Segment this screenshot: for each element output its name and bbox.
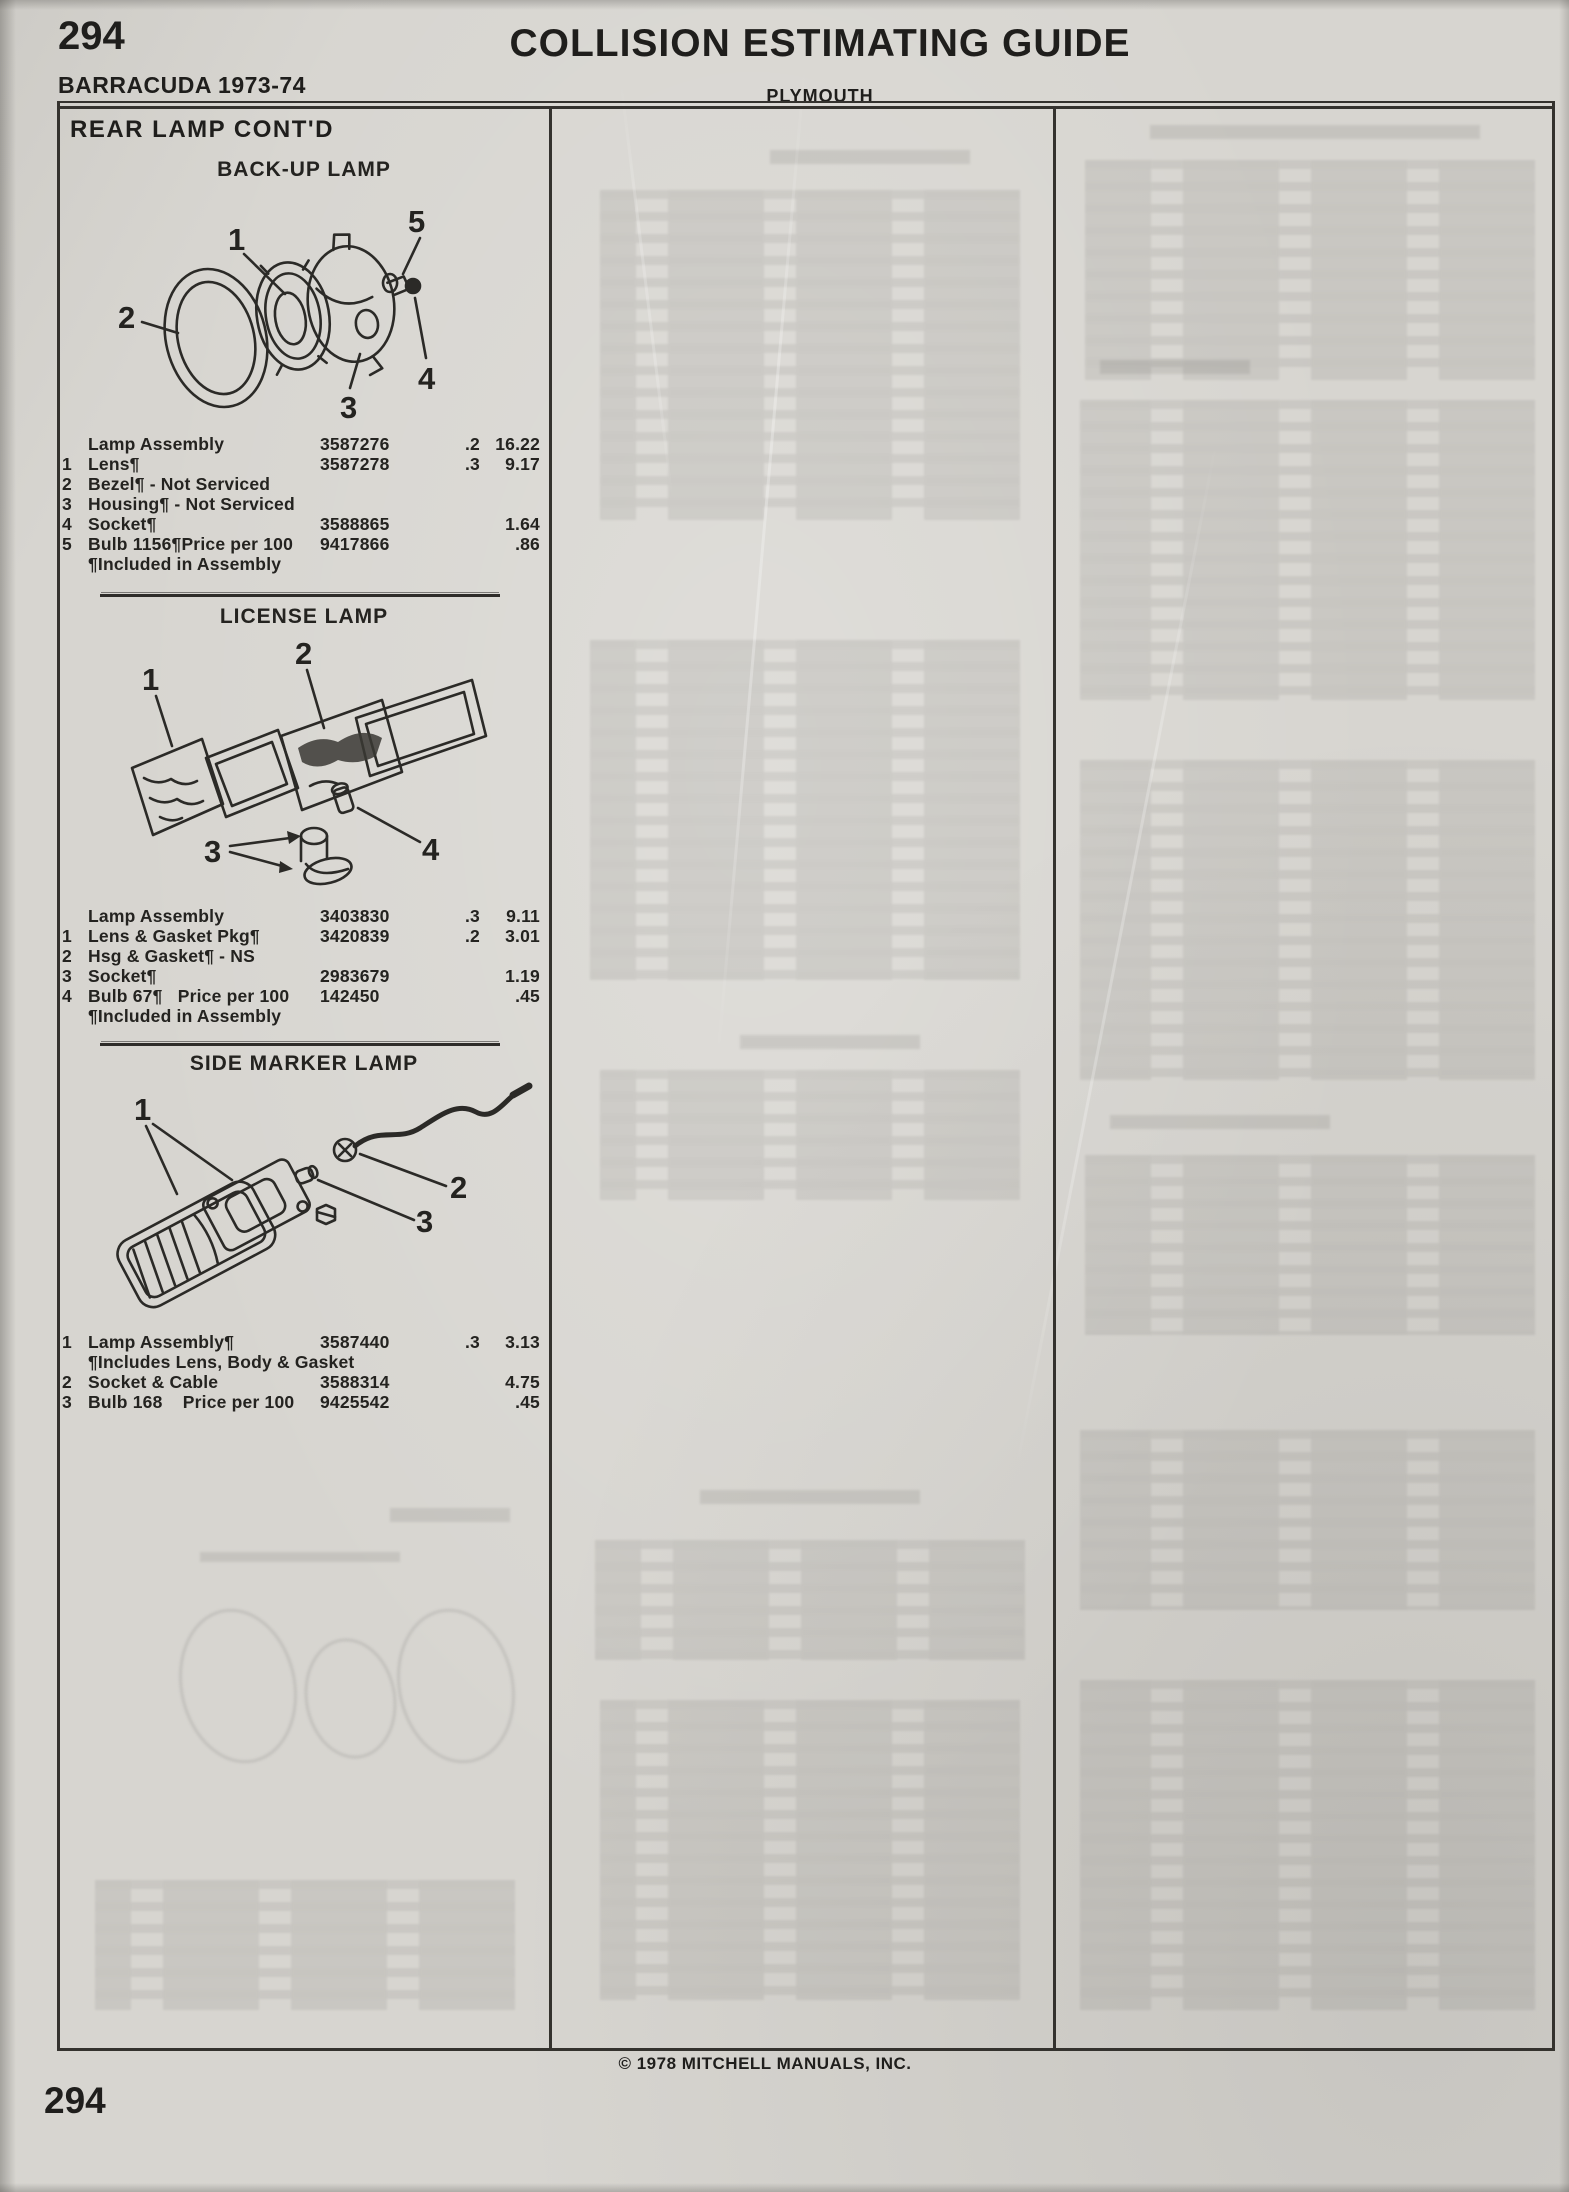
part-number: 142450 xyxy=(320,986,432,1006)
column-divider xyxy=(1053,106,1056,2051)
part-number xyxy=(320,1006,432,1026)
bleed-through-artifact xyxy=(200,1552,400,1562)
item-number: 3 xyxy=(62,494,88,514)
parts-row: 1Lens¶3587278.39.17 xyxy=(62,454,540,474)
section-separator xyxy=(100,594,500,597)
price xyxy=(480,946,540,966)
socket-shape xyxy=(301,828,354,888)
model-title: BARRACUDA 1973-74 xyxy=(58,72,306,99)
part-number: 3587440 xyxy=(320,1332,432,1352)
page-number-top: 294 xyxy=(58,14,125,59)
parts-row: 4Socket¶35888651.64 xyxy=(62,514,540,534)
part-number xyxy=(320,1352,432,1372)
callout-number: 4 xyxy=(418,361,436,396)
parts-row: 3Socket¶29836791.19 xyxy=(62,966,540,986)
bulb-shape xyxy=(331,782,355,815)
item-number xyxy=(62,434,88,454)
part-number: 3587278 xyxy=(320,454,432,474)
page-number-bottom: 294 xyxy=(44,2080,106,2122)
footer-copyright: © 1978 MITCHELL MANUALS, INC. xyxy=(460,2054,1070,2074)
part-number: 9425542 xyxy=(320,1392,432,1412)
bleed-through-artifact xyxy=(1085,160,1535,380)
parts-row: Lamp Assembly3403830.39.11 xyxy=(62,906,540,926)
price: .45 xyxy=(480,1392,540,1412)
item-number: 3 xyxy=(62,966,88,986)
nut-shape xyxy=(406,279,420,293)
parts-row: ¶Included in Assembly xyxy=(62,554,540,574)
price xyxy=(480,554,540,574)
parts-row: Lamp Assembly3587276.216.22 xyxy=(62,434,540,454)
callout-number: 4 xyxy=(422,832,440,867)
callout-number: 5 xyxy=(408,204,425,239)
labor-time xyxy=(432,1372,480,1392)
bleed-through-artifact xyxy=(1150,125,1480,139)
description: Bulb 67¶ Price per 100 xyxy=(88,986,320,1006)
item-number: 4 xyxy=(62,986,88,1006)
price: 3.01 xyxy=(480,926,540,946)
callout-number: 3 xyxy=(416,1204,433,1239)
section-heading-side-marker-lamp: SIDE MARKER LAMP xyxy=(57,1052,551,1076)
nut-shape xyxy=(317,1205,335,1224)
callout-line xyxy=(318,1180,414,1220)
column-divider xyxy=(549,106,552,2051)
price: 9.11 xyxy=(480,906,540,926)
table-border-right xyxy=(1552,101,1555,2051)
lamp-assembly-shape xyxy=(112,1176,281,1313)
labor-time xyxy=(432,554,480,574)
price: .45 xyxy=(480,986,540,1006)
part-number xyxy=(320,946,432,966)
description: Lamp Assembly¶ xyxy=(88,1332,320,1352)
parts-row: 4Bulb 67¶ Price per 100142450.45 xyxy=(62,986,540,1006)
scan-edge-artifact xyxy=(0,2183,1569,2192)
bleed-through-artifact xyxy=(390,1508,510,1522)
labor-time: .2 xyxy=(432,926,480,946)
item-number xyxy=(62,1352,88,1372)
labor-time: .3 xyxy=(432,1332,480,1352)
price: 9.17 xyxy=(480,454,540,474)
table-border-top xyxy=(57,106,1555,109)
license-lamp-diagram: 1 2 3 4 xyxy=(60,636,542,894)
scan-edge-artifact xyxy=(0,0,1569,10)
labor-time: .3 xyxy=(432,454,480,474)
labor-time xyxy=(432,946,480,966)
bleed-through-artifact xyxy=(295,1631,406,1766)
labor-time: .3 xyxy=(432,906,480,926)
section-separator xyxy=(100,1043,500,1046)
table-border-top xyxy=(57,101,1555,103)
price xyxy=(480,494,540,514)
description: Bezel¶ - Not Serviced xyxy=(88,474,320,494)
callout-line xyxy=(153,1124,232,1180)
parts-row: 2Bezel¶ - Not Serviced xyxy=(62,474,540,494)
callout-number: 1 xyxy=(228,222,245,257)
description: Bulb 168 Price per 100 xyxy=(88,1392,320,1412)
lens-shape xyxy=(132,739,223,835)
labor-time xyxy=(432,494,480,514)
bleed-through-artifact xyxy=(590,640,1020,980)
callout-number: 3 xyxy=(340,390,357,425)
parts-row: 5Bulb 1156¶Price per 1009417866.86 xyxy=(62,534,540,554)
labor-time xyxy=(432,986,480,1006)
make-title: PLYMOUTH xyxy=(620,86,1020,107)
bleed-through-artifact xyxy=(595,1540,1025,1660)
item-number: 5 xyxy=(62,534,88,554)
table-border-bottom xyxy=(57,2048,1555,2051)
callout-line xyxy=(142,322,178,333)
bleed-through-artifact xyxy=(1080,1430,1535,1610)
labor-time xyxy=(432,474,480,494)
bleed-through-artifact xyxy=(165,1598,311,1775)
item-number: 3 xyxy=(62,1392,88,1412)
labor-time xyxy=(432,534,480,554)
parts-list-backup-lamp: Lamp Assembly3587276.216.221Lens¶3587278… xyxy=(62,434,540,574)
frame-shape xyxy=(356,680,486,776)
parts-row: 1Lens & Gasket Pkg¶3420839.23.01 xyxy=(62,926,540,946)
callout-line xyxy=(244,254,285,294)
arrowhead xyxy=(279,861,293,873)
arrowhead xyxy=(287,831,301,844)
part-number: 2983679 xyxy=(320,966,432,986)
price: 1.64 xyxy=(480,514,540,534)
bleed-through-artifact xyxy=(1110,1115,1330,1129)
description: ¶Includes Lens, Body & Gasket xyxy=(88,1352,320,1372)
description: Lens¶ xyxy=(88,454,320,474)
item-number: 2 xyxy=(62,1372,88,1392)
parts-list-side-marker-lamp: 1Lamp Assembly¶3587440.33.13¶Includes Le… xyxy=(62,1332,540,1412)
item-number xyxy=(62,1006,88,1026)
item-number: 4 xyxy=(62,514,88,534)
bleed-through-artifact xyxy=(770,150,970,164)
callout-number: 2 xyxy=(450,1170,467,1205)
labor-time xyxy=(432,1352,480,1372)
item-number: 1 xyxy=(62,454,88,474)
labor-time xyxy=(432,1006,480,1026)
price: 16.22 xyxy=(480,434,540,454)
callout-line xyxy=(403,238,420,274)
labor-time: .2 xyxy=(432,434,480,454)
price: 1.19 xyxy=(480,966,540,986)
bleed-through-artifact xyxy=(1085,1155,1535,1335)
callout-line xyxy=(230,852,282,866)
description: ¶Included in Assembly xyxy=(88,1006,320,1026)
scanned-catalog-page: 294 COLLISION ESTIMATING GUIDE BARRACUDA… xyxy=(0,0,1569,2192)
callout-number: 1 xyxy=(142,662,159,697)
bleed-through-artifact xyxy=(1080,400,1535,700)
part-number: 9417866 xyxy=(320,534,432,554)
bleed-through-artifact xyxy=(1100,360,1250,374)
price xyxy=(480,1352,540,1372)
bleed-through-artifact xyxy=(600,190,1020,520)
parts-row: 3Bulb 168 Price per 1009425542.45 xyxy=(62,1392,540,1412)
callout-line xyxy=(230,838,290,846)
item-number: 2 xyxy=(62,946,88,966)
side-marker-lamp-diagram: 1 2 3 xyxy=(60,1084,542,1336)
callout-line xyxy=(360,1154,446,1186)
item-number xyxy=(62,906,88,926)
parts-row: 1Lamp Assembly¶3587440.33.13 xyxy=(62,1332,540,1352)
bleed-through-artifact xyxy=(740,1035,920,1049)
bracket-shape xyxy=(200,1157,312,1253)
bleed-through-artifact xyxy=(95,1880,515,2010)
labor-time xyxy=(432,1392,480,1412)
price xyxy=(480,1006,540,1026)
table-border-left xyxy=(57,101,60,2051)
description: Lens & Gasket Pkg¶ xyxy=(88,926,320,946)
description: ¶Included in Assembly xyxy=(88,554,320,574)
bleed-through-artifact xyxy=(383,1598,529,1775)
description: Housing¶ - Not Serviced xyxy=(88,494,320,514)
callout-line xyxy=(415,298,426,358)
callout-line xyxy=(350,354,360,388)
description: Lamp Assembly xyxy=(88,906,320,926)
description: Lamp Assembly xyxy=(88,434,320,454)
scan-edge-artifact xyxy=(0,0,16,2192)
parts-list-license-lamp: Lamp Assembly3403830.39.111Lens & Gasket… xyxy=(62,906,540,1026)
item-number: 1 xyxy=(62,1332,88,1352)
bleed-through-artifact xyxy=(600,1070,1020,1200)
backup-lamp-diagram: 1 2 3 4 5 xyxy=(68,192,538,440)
part-number: 3587276 xyxy=(320,434,432,454)
part-number: 3403830 xyxy=(320,906,432,926)
parts-row: ¶Included in Assembly xyxy=(62,1006,540,1026)
description: Hsg & Gasket¶ - NS xyxy=(88,946,320,966)
callout-line xyxy=(307,670,324,728)
item-number: 1 xyxy=(62,926,88,946)
part-number xyxy=(320,494,432,514)
callout-number: 1 xyxy=(134,1092,151,1127)
bleed-through-artifact xyxy=(1080,1680,1535,2010)
parts-row: 2Hsg & Gasket¶ - NS xyxy=(62,946,540,966)
price: 4.75 xyxy=(480,1372,540,1392)
bleed-through-artifact xyxy=(700,1490,920,1504)
part-number: 3588314 xyxy=(320,1372,432,1392)
bulb-shape xyxy=(294,1165,319,1185)
price xyxy=(480,474,540,494)
item-number: 2 xyxy=(62,474,88,494)
guide-title: COLLISION ESTIMATING GUIDE xyxy=(420,22,1220,66)
parts-row: 2Socket & Cable35883144.75 xyxy=(62,1372,540,1392)
callout-line xyxy=(156,696,172,746)
callout-number: 2 xyxy=(295,636,312,671)
column-section-header: REAR LAMP CONT'D xyxy=(70,116,334,144)
bleed-through-artifact xyxy=(600,1700,1020,2000)
labor-time xyxy=(432,966,480,986)
part-number: 3420839 xyxy=(320,926,432,946)
parts-row: 3Housing¶ - Not Serviced xyxy=(62,494,540,514)
labor-time xyxy=(432,514,480,534)
callout-line xyxy=(358,808,420,842)
scan-edge-artifact xyxy=(1559,0,1569,2192)
callout-number: 2 xyxy=(118,300,135,335)
item-number xyxy=(62,554,88,574)
bleed-through-artifact xyxy=(1080,760,1535,1080)
price: 3.13 xyxy=(480,1332,540,1352)
section-heading-license-lamp: LICENSE LAMP xyxy=(57,605,551,629)
description: Bulb 1156¶Price per 100 xyxy=(88,534,320,554)
part-number: 3588865 xyxy=(320,514,432,534)
description: Socket¶ xyxy=(88,514,320,534)
socket-cable-shape xyxy=(334,1086,529,1161)
description: Socket¶ xyxy=(88,966,320,986)
parts-row: ¶Includes Lens, Body & Gasket xyxy=(62,1352,540,1372)
section-heading-backup-lamp: BACK-UP LAMP xyxy=(57,158,551,182)
part-number xyxy=(320,474,432,494)
part-number xyxy=(320,554,432,574)
price: .86 xyxy=(480,534,540,554)
description: Socket & Cable xyxy=(88,1372,320,1392)
callout-number: 3 xyxy=(204,834,221,869)
